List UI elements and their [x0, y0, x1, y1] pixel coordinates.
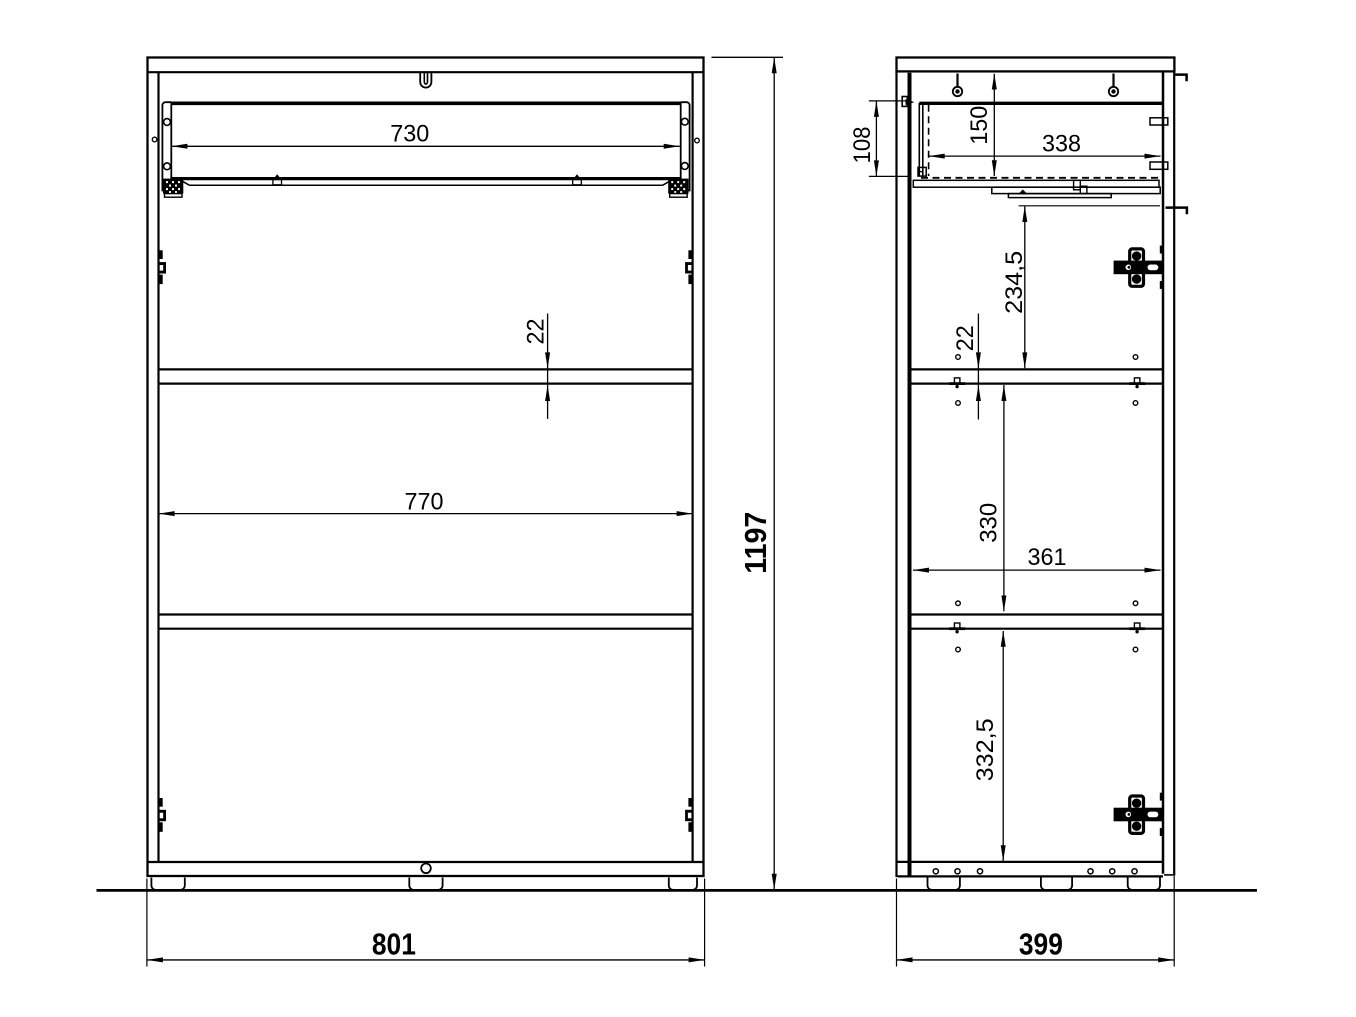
svg-text:1197: 1197 [738, 512, 773, 574]
svg-text:730: 730 [390, 120, 429, 147]
svg-text:332,5: 332,5 [972, 718, 999, 781]
svg-text:770: 770 [405, 489, 444, 516]
svg-text:338: 338 [1042, 130, 1081, 157]
svg-text:108: 108 [849, 127, 876, 164]
svg-text:361: 361 [1028, 544, 1067, 571]
svg-text:22: 22 [523, 319, 550, 345]
svg-text:801: 801 [372, 927, 416, 962]
svg-text:234,5: 234,5 [1001, 251, 1028, 314]
svg-text:150: 150 [966, 106, 993, 145]
svg-text:22: 22 [952, 325, 979, 351]
svg-text:399: 399 [1019, 927, 1063, 962]
svg-text:330: 330 [976, 503, 1003, 543]
